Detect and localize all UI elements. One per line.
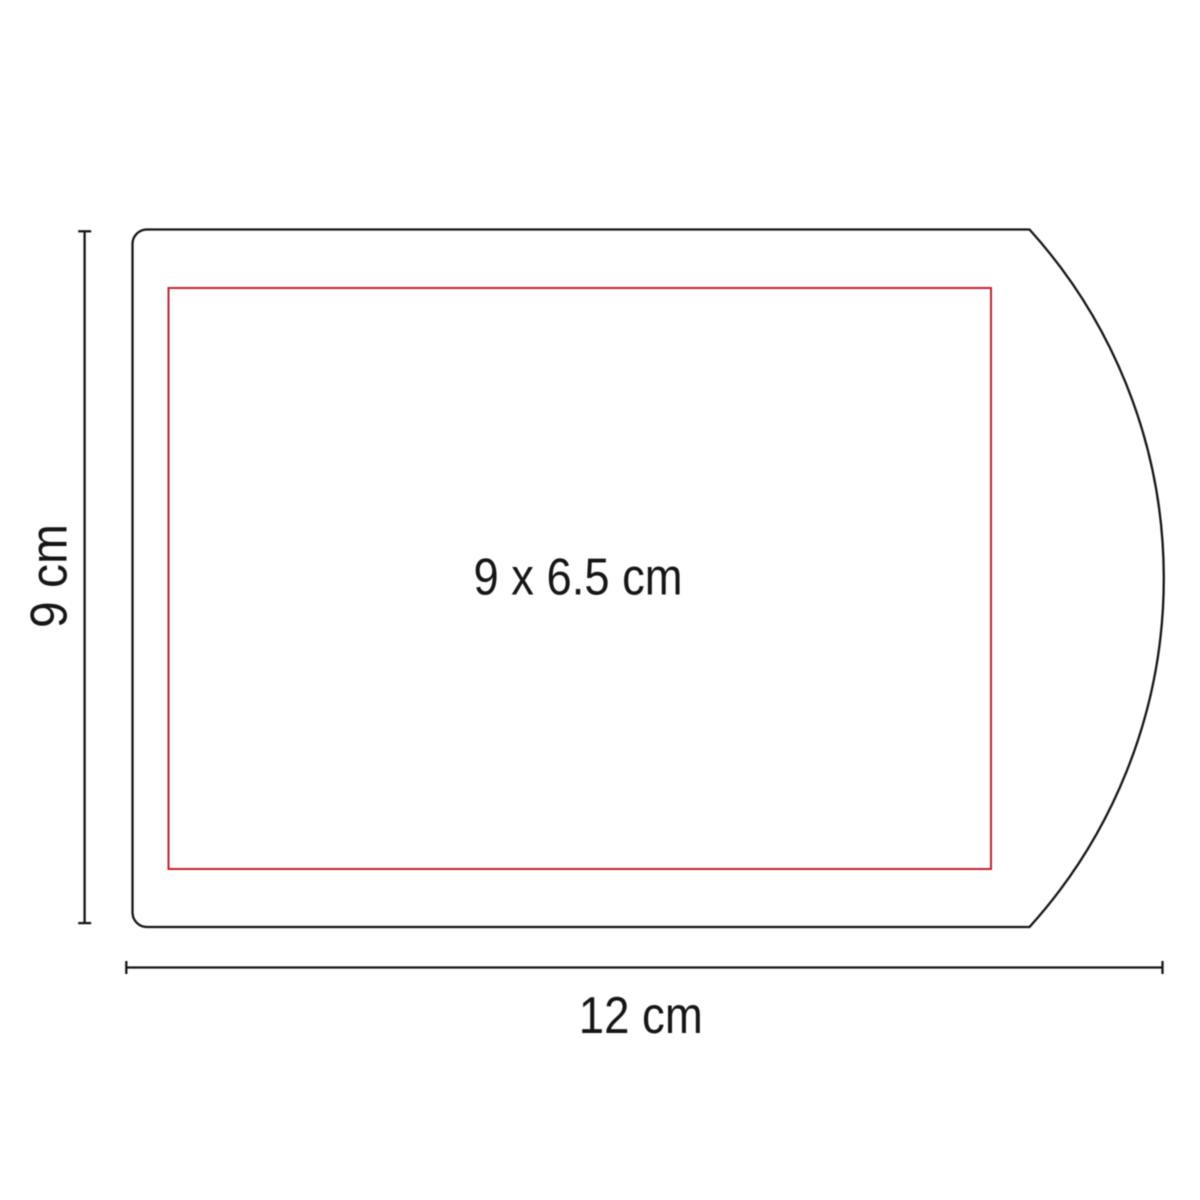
svg-text:9 cm: 9 cm xyxy=(20,524,78,628)
svg-text:9 x 6.5 cm: 9 x 6.5 cm xyxy=(474,548,683,606)
svg-text:12 cm: 12 cm xyxy=(579,986,703,1044)
